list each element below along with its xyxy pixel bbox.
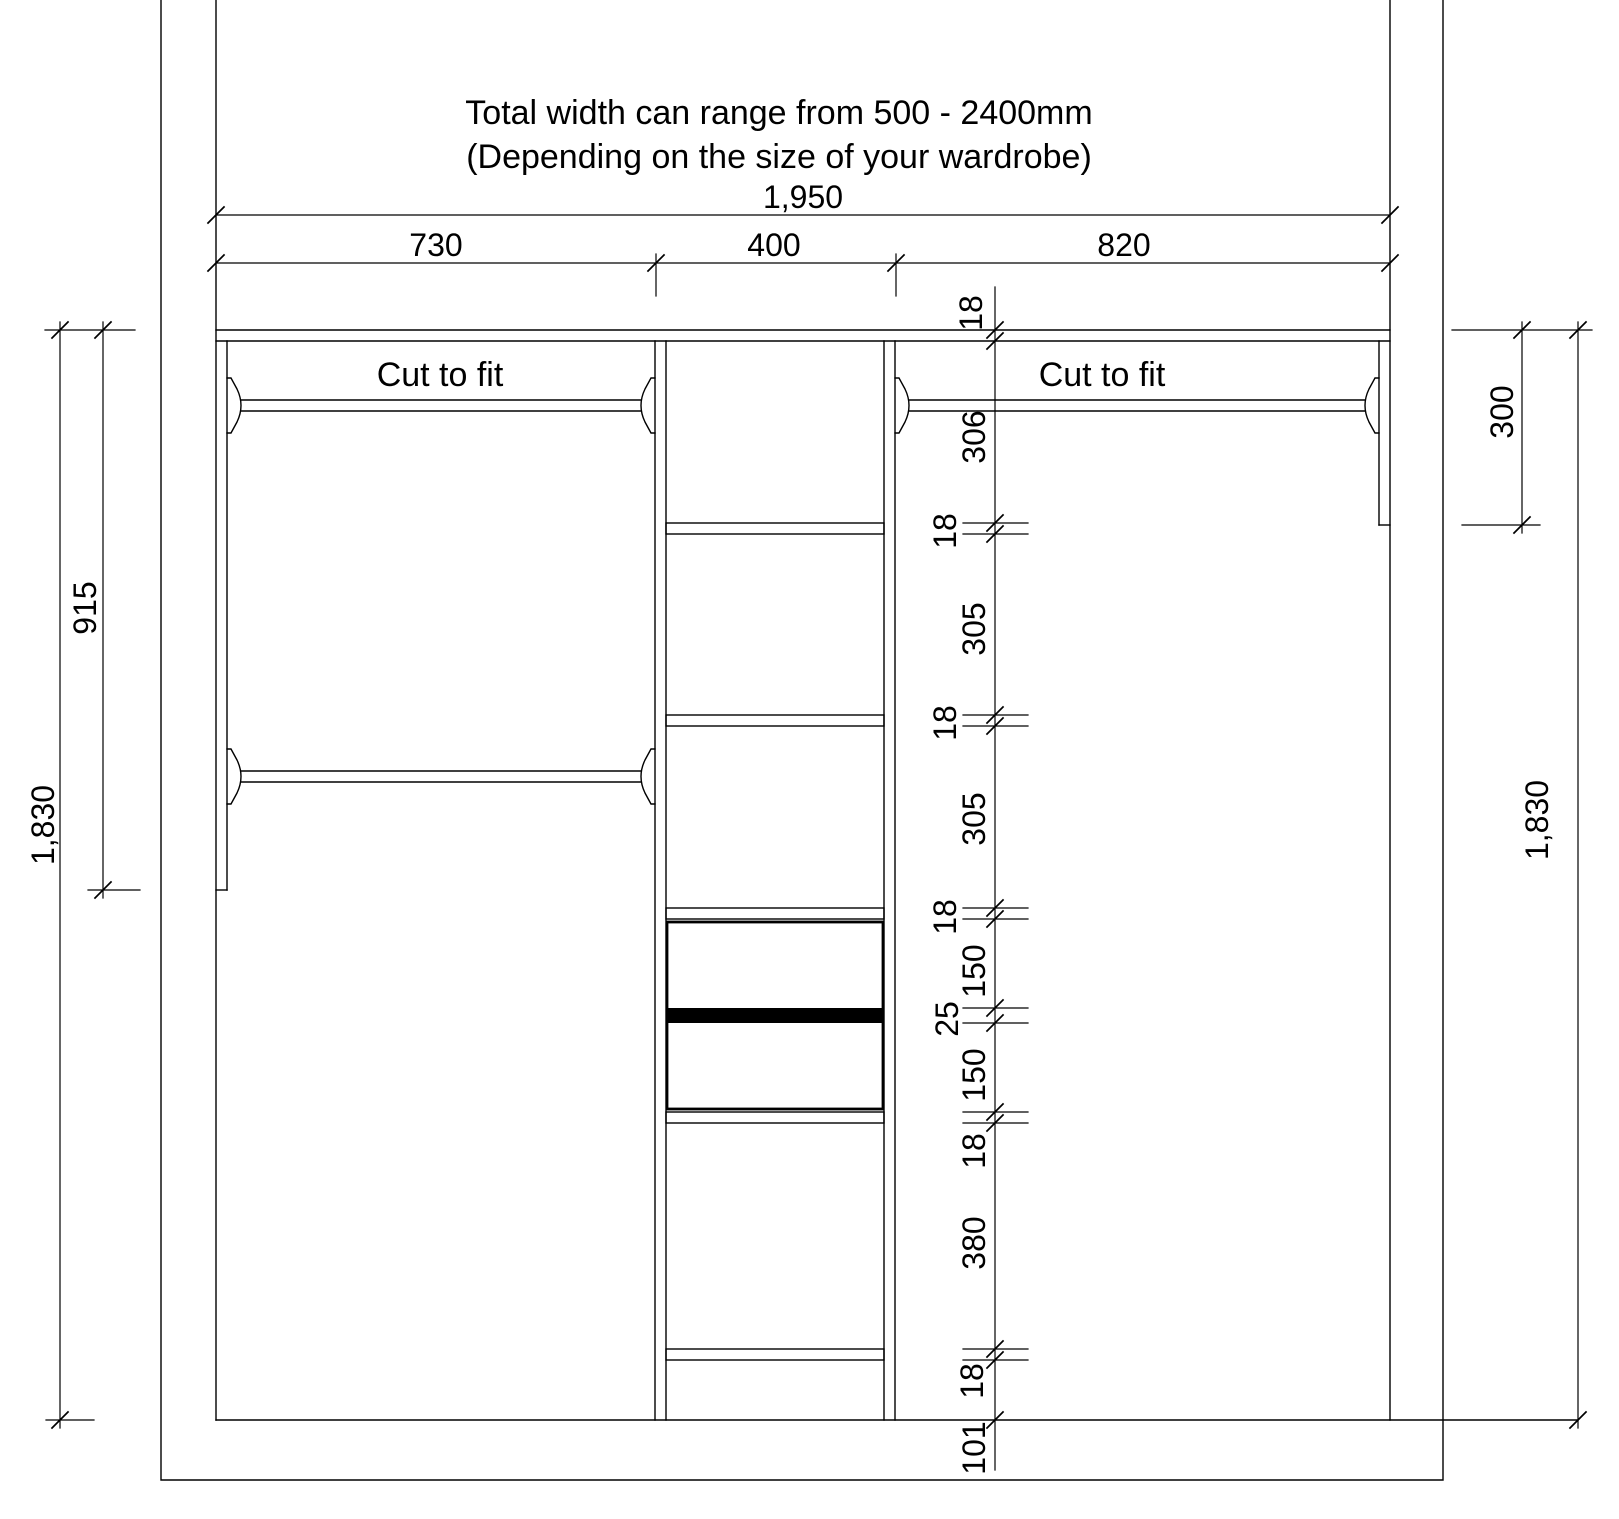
hanging-rail-left-lower	[227, 749, 655, 804]
left-side-panel	[216, 341, 227, 890]
middle-tower-dividers	[655, 341, 895, 1420]
shelf	[666, 1112, 884, 1123]
chain-label: 18	[956, 1133, 992, 1169]
rail-label-right: Cut to fit	[1039, 356, 1166, 394]
chain-label: 380	[956, 1216, 992, 1269]
top-panel	[216, 330, 1390, 341]
chain-label: 101	[956, 1421, 992, 1474]
shelf	[666, 908, 884, 919]
dim-right-total-height	[1570, 322, 1586, 1428]
dim-label-width-right: 820	[1097, 227, 1150, 263]
drawer-unit	[666, 922, 884, 1109]
title-line-2: (Depending on the size of your wardrobe)	[466, 138, 1092, 176]
rail-bracket	[227, 378, 241, 433]
wardrobe-drawing-page: Total width can range from 500 - 2400mm …	[0, 0, 1619, 1514]
hanging-rails	[227, 378, 1379, 804]
shelf	[666, 523, 884, 534]
dim-width-segments	[208, 254, 1398, 296]
rail-bracket	[641, 378, 655, 433]
room-outline	[161, 0, 1443, 1480]
dim-label-left-panel-height: 915	[67, 581, 103, 634]
chain-label: 150	[956, 944, 992, 997]
dim-label-width-left: 730	[409, 227, 462, 263]
dim-label-width-middle: 400	[747, 227, 800, 263]
cabinet-structure	[216, 0, 1578, 1420]
room-walls-floor	[161, 0, 1443, 1480]
shelf	[666, 1349, 884, 1360]
chain-label: 18	[954, 1363, 990, 1399]
dimension-lines	[45, 207, 1592, 1470]
chain-label: 305	[956, 602, 992, 655]
chain-label: 18	[927, 899, 963, 935]
dim-label-right-total-height: 1,830	[1519, 780, 1555, 860]
wardrobe-elevation-drawing: Total width can range from 500 - 2400mm …	[0, 0, 1619, 1514]
rail-bracket	[895, 378, 909, 433]
chain-label: 305	[956, 792, 992, 845]
rail-bracket	[227, 749, 241, 804]
tower-shelves	[666, 523, 884, 1360]
chain-label: 18	[927, 513, 963, 549]
rail-bracket	[1365, 378, 1379, 433]
chain-label: 306	[956, 410, 992, 463]
chain-labels: 18 306 18 305 18 305 18 150 25 150 18 38…	[927, 295, 992, 1474]
title-line-1: Total width can range from 500 - 2400mm	[465, 94, 1092, 132]
dim-label-left-total-height: 1,830	[25, 785, 61, 865]
right-side-panel	[1379, 341, 1390, 525]
chain-label: 150	[956, 1048, 992, 1101]
dim-label-total-width: 1,950	[763, 179, 843, 215]
chain-label: 18	[953, 295, 989, 331]
shelf	[666, 715, 884, 726]
chain-label: 18	[927, 705, 963, 741]
dim-left-total-height	[45, 322, 135, 1428]
text-labels: Total width can range from 500 - 2400mm …	[25, 94, 1555, 1475]
dim-label-right-panel-height: 300	[1484, 385, 1520, 438]
rail-label-left: Cut to fit	[377, 356, 504, 394]
drawer-divider-band	[666, 1008, 884, 1023]
rail-bracket	[641, 749, 655, 804]
dim-right-panel-height	[1452, 322, 1592, 533]
chain-label: 25	[929, 1001, 965, 1037]
